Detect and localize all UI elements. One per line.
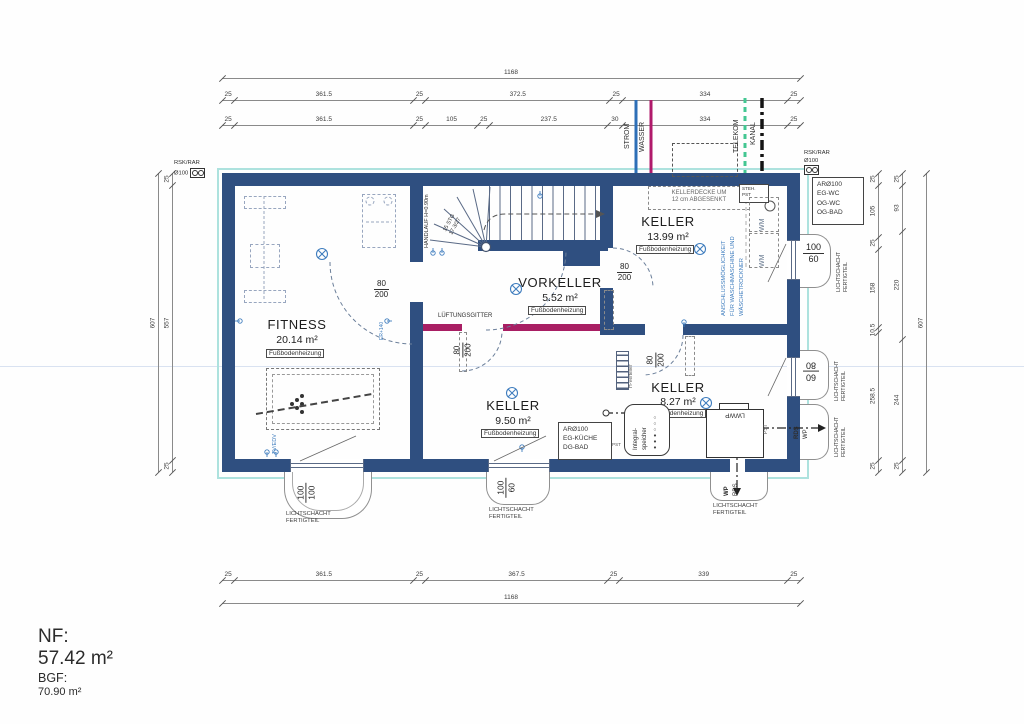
dimension-line (926, 173, 927, 472)
dim-value: 25 (870, 240, 877, 247)
dimension-line (222, 125, 800, 126)
room-label-keller-mitte: KELLER (473, 399, 553, 414)
kellerdecke-note-line2: 12 cm ABGESENKT (672, 197, 726, 203)
dim-value: 25 (416, 116, 423, 123)
stair-treads (489, 186, 600, 240)
shaft-size-100-100: 100100 (295, 483, 316, 503)
dim-value: 1168 (504, 594, 518, 601)
kellerdecke-note-box: KELLERDECKE UM 12 cm ABGESENKT (648, 186, 750, 210)
duct-line: ARØ100 (563, 426, 588, 433)
tv-edv-label: TV/EDV (272, 416, 278, 454)
lueftungsgitter-label: LÜFTUNGSGITTER (438, 313, 492, 320)
dim-value: 25 (894, 176, 901, 183)
room-area-keller-nord: 13.99 m² (628, 231, 708, 243)
dim-value: 258.5 (870, 388, 877, 404)
integral-dots: ●●●○○○ (653, 410, 659, 450)
dim-value: 607 (918, 317, 925, 328)
dim-value: 105 (870, 206, 877, 217)
heating-label-fitness: Fußbodenheizung (266, 349, 324, 358)
duct-label-wc: ARØ100 EG-WC OG-WC OG-BAD (812, 177, 864, 225)
washing-machine-box: WM (749, 197, 779, 232)
wall-keller-nord-upper (600, 186, 613, 248)
handrail-label: HANDLAUF H=0.90m (424, 190, 430, 248)
heating-label-vorkeller: Fußbodenheizung (528, 306, 586, 315)
dim-value: 361.5 (316, 116, 332, 123)
dimension-line (222, 78, 800, 79)
rsk-label-east: RSK/RAR Ø100 (804, 150, 830, 175)
heating-label-keller-mitte: Fußbodenheizung (481, 429, 539, 438)
nf-label: NF: (38, 626, 69, 648)
dim-value: 25 (164, 176, 171, 183)
lwwp-heat-pump: LWWP (706, 409, 764, 458)
door-label-keller-mitte: 80200 (452, 343, 472, 358)
rsk-icon (804, 165, 819, 175)
room-area-keller-mitte: 9.50 m² (473, 415, 553, 427)
room-area-fitness: 20.14 m² (252, 334, 342, 346)
wall-keller-sued-right (683, 324, 787, 335)
wall-stair-stub (563, 251, 600, 266)
dryer-box: WM (749, 233, 779, 268)
gym-equipment (244, 290, 286, 303)
dimension-line (172, 173, 173, 472)
bgf-label: BGF: (38, 671, 67, 685)
dim-value: 334 (700, 116, 711, 123)
dim-value: 25 (790, 116, 797, 123)
pst-small-label: PST (612, 442, 621, 447)
dim-value: 25 (790, 91, 797, 98)
dim-value: 105 (446, 116, 457, 123)
dim-value: 93 (894, 205, 901, 212)
lichtschacht-label-e3a: LICHTSCHACHT (834, 407, 841, 457)
nf-value: 57.42 m² (38, 648, 113, 670)
floor-plan-page: 116825361.525372.5253342525361.525105252… (0, 0, 1024, 724)
duct-line: DG-BAD (563, 444, 588, 451)
lichtschacht-label-s: LICHTSCHACHTFERTIGTEIL (489, 507, 534, 521)
rds-label-east: RDS (794, 413, 801, 439)
integral-text1: Integral- (633, 410, 640, 450)
lichtschacht-label-e1a: LICHTSCHACHT (836, 236, 843, 292)
wall-exterior-west (222, 173, 235, 472)
exterior-dashed-outline (672, 143, 738, 177)
telekom-line-label: TELEKOM (733, 95, 741, 153)
wm-text: WM (759, 234, 767, 267)
dim-value: 361.5 (316, 571, 332, 578)
shaft-size-100-60: 10060 (495, 478, 516, 498)
dimension-line (158, 173, 159, 472)
dim-value: 372.5 (510, 91, 526, 98)
dimension-line (222, 100, 800, 101)
dim-value: 158 (870, 283, 877, 294)
lichtschacht-label-e1b: FERTIGTEIL (843, 236, 850, 292)
wasser-line-label: WASSER (639, 97, 647, 152)
dim-value: 367.5 (508, 571, 524, 578)
room-label-vorkeller: VORKELLER (512, 276, 608, 291)
steh-text: STEH. (742, 186, 756, 191)
dim-value: 25 (894, 462, 901, 469)
window-keller-mitte (488, 459, 550, 472)
gym-equipment-bench (362, 194, 396, 248)
wp-label-east: WP (803, 413, 810, 439)
gym-equipment (244, 196, 286, 209)
gym-equipment (250, 244, 280, 268)
dim-value: 220 (894, 280, 901, 291)
wall-lueftung-left (423, 324, 462, 331)
room-label-fitness: FITNESS (252, 318, 342, 333)
duct-label-kueche: ARØ100 EG-KÜCHE DG-BAD (558, 422, 612, 460)
er140-label: ER+140 (380, 308, 386, 340)
dim-value: 25 (870, 176, 877, 183)
duct-line: ARØ100 (817, 181, 842, 188)
duct-line: EG-WC (817, 190, 839, 197)
dim-value: 334 (700, 91, 711, 98)
window-keller-sued (787, 357, 800, 397)
room-label-keller-nord: KELLER (628, 215, 708, 230)
shaft-size-60-80-east: 6080 (803, 360, 819, 383)
dim-value: 25 (610, 571, 617, 578)
dim-value: 25 (225, 116, 232, 123)
heating-label-keller-nord: Fußbodenheizung (636, 245, 694, 254)
wp-label-south: WP (724, 470, 731, 496)
integral-text2: speicher (642, 410, 649, 450)
lichtschacht-label-e3b: FERTIGTEIL (841, 407, 848, 457)
window-keller-nord (787, 240, 800, 280)
lichtschacht-label-e2b: FERTIGTEIL (841, 351, 848, 401)
room-area-vorkeller: 5.52 m² (512, 292, 608, 304)
lichtschacht-label-e2a: LICHTSCHACHT (834, 351, 841, 401)
strom-line-label: STROM (624, 99, 632, 149)
dim-value: 30 (611, 116, 618, 123)
dimension-line (222, 580, 800, 581)
lichtschacht-label-sw: LICHTSCHACHTFERTIGTEIL (286, 511, 331, 525)
rsk-label-west: RSK/RAR Ø100 (174, 160, 205, 178)
door-label-keller-nord: 80200 (617, 262, 632, 282)
room-label-keller-sued: KELLER (640, 381, 716, 396)
wall-stair-side (478, 240, 608, 251)
h-verteiler-label: H-Verteiler (629, 352, 635, 388)
dim-value: 237.5 (541, 116, 557, 123)
wall-fitness-lower (410, 302, 423, 459)
pst-vertical-label: PST (764, 412, 770, 434)
lichtschacht-label-se: LICHTSCHACHTFERTIGTEIL (713, 503, 758, 517)
dim-value: 25 (480, 116, 487, 123)
dim-value: 1168 (504, 69, 518, 76)
dimension-line (878, 173, 879, 472)
dim-value: 25 (416, 571, 423, 578)
dim-value: 244 (894, 394, 901, 405)
kanal-line-label: KANAL (750, 95, 758, 145)
dim-value: 361.5 (316, 91, 332, 98)
integral-speicher-tank: Integral- speicher ●●●○○○ (624, 404, 670, 456)
wall-lueftung-right (503, 324, 600, 331)
dim-value: 25 (613, 91, 620, 98)
door-label-fitness: 80200 (374, 279, 389, 299)
dimension-line (222, 603, 800, 604)
duct-line: EG-KÜCHE (563, 435, 597, 442)
dim-value: 25 (225, 91, 232, 98)
dim-value: 25 (416, 91, 423, 98)
shaft-size-100-60-east: 10060 (803, 242, 824, 265)
door-leaf (685, 336, 695, 376)
dimension-line (902, 173, 903, 472)
anschluss-note-line2: FÜR WASCHMASCHINE UND (730, 212, 737, 316)
lwwp-label: LWWP (713, 411, 757, 418)
rsk-icon (190, 168, 205, 178)
wall-fitness-upper (410, 186, 423, 262)
rds-label-south: RDS (733, 470, 740, 496)
anschluss-note-line3: WÄSCHETROCKNER (739, 212, 746, 316)
anschluss-note-line1: ANSCHLUSSMÖGLICHKEIT (721, 212, 728, 316)
dim-value: 10.5 (870, 323, 877, 336)
dim-value: 25 (870, 462, 877, 469)
kellerdecke-note-line1: KELLERDECKE UM (672, 190, 727, 196)
duct-line: OG-WC (817, 200, 840, 207)
bgf-value: 70.90 m² (38, 686, 81, 699)
duct-line: OG-BAD (817, 209, 843, 216)
dim-value: 25 (164, 462, 171, 469)
dim-value: 339 (698, 571, 709, 578)
wm-text: WM (759, 198, 767, 231)
billiard-table-inner (272, 374, 374, 424)
door-label-keller-sued: 80200 (645, 353, 665, 368)
dim-value: 25 (790, 571, 797, 578)
dim-value: 607 (150, 317, 157, 328)
dim-value: 557 (164, 317, 171, 328)
dim-value: 25 (225, 571, 232, 578)
window-fitness (290, 459, 364, 472)
